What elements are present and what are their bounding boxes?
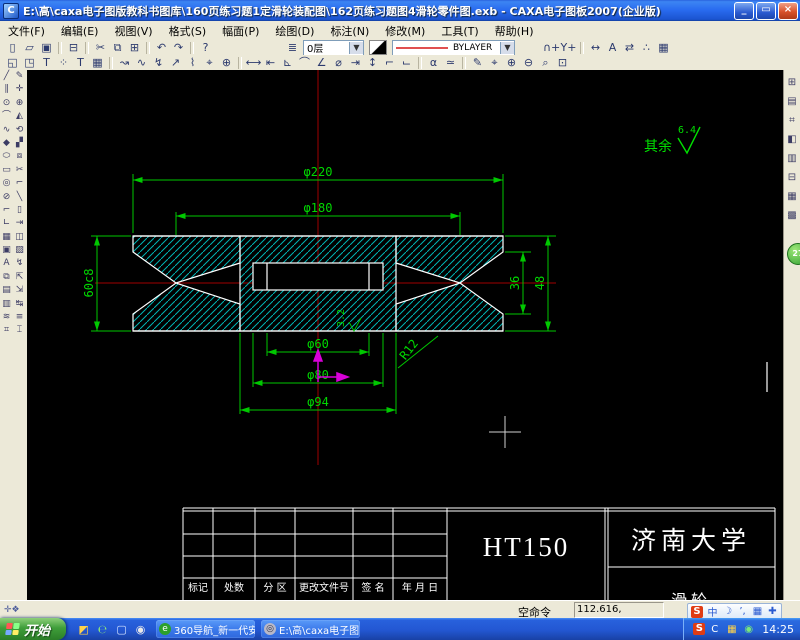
menu-edit[interactable]: 编辑(E) bbox=[53, 21, 107, 41]
snap-toggle-icon[interactable]: ❖ bbox=[12, 605, 20, 615]
layer-icon[interactable]: ≣ bbox=[284, 41, 301, 55]
dim-linear-button[interactable]: ⟷ bbox=[245, 56, 262, 70]
part-lib-button[interactable]: ▩ bbox=[785, 208, 800, 227]
caxa-window: { "window": { "title": "E:\\高\\caxa电子图版教… bbox=[0, 0, 800, 640]
separator bbox=[190, 42, 194, 54]
transform-move-button[interactable]: ↔ bbox=[587, 41, 604, 55]
title-block-labels: 标记 处数 分 区 更改文件号 签 名 年 月 日 bbox=[188, 581, 438, 594]
tool-block[interactable]: ⧉ bbox=[1, 271, 13, 284]
copy-button[interactable]: ⧉ bbox=[109, 41, 126, 55]
dim-offset-button[interactable]: ⇥ bbox=[347, 56, 364, 70]
menu-format[interactable]: 格式(S) bbox=[161, 21, 215, 41]
dim-phi180: φ180 bbox=[304, 201, 333, 215]
tool-hatch[interactable]: ▦ bbox=[1, 231, 13, 244]
redraw-button[interactable]: ✎ bbox=[469, 56, 486, 70]
dim-chain-button[interactable]: ⌙ bbox=[398, 56, 415, 70]
frame-settings-button[interactable]: ◳ bbox=[21, 56, 38, 70]
ime-chinese-icon[interactable]: 中 bbox=[705, 604, 720, 619]
pan-button[interactable]: ⌖ bbox=[486, 56, 503, 70]
separator bbox=[146, 42, 150, 54]
menu-dimension[interactable]: 标注(N) bbox=[322, 21, 377, 41]
separator bbox=[85, 42, 89, 54]
point-style-button[interactable]: ⁘ bbox=[55, 56, 72, 70]
center-button[interactable]: ⊕ bbox=[218, 56, 235, 70]
help-button[interactable]: ? bbox=[197, 41, 214, 55]
separator bbox=[580, 42, 584, 54]
start-button[interactable]: 开始 bbox=[0, 618, 66, 640]
transform-rotate-button[interactable]: ⇄ bbox=[621, 41, 638, 55]
tool-trim[interactable]: ⇲ bbox=[14, 284, 26, 297]
image-lib-button[interactable]: ◧ bbox=[785, 132, 800, 151]
sogou-logo-icon[interactable]: S bbox=[691, 606, 703, 618]
task-button-caxa[interactable]: ◎ E:\高\caxa电子图... bbox=[261, 620, 360, 638]
folder-icon[interactable]: ▢ bbox=[114, 622, 129, 637]
app-icon: C bbox=[3, 3, 19, 19]
windows-logo-icon bbox=[5, 623, 21, 635]
svg-text:处数: 处数 bbox=[224, 581, 244, 594]
library-toolbar: ⊞▤⌗◧▥⊟▦▩ bbox=[783, 70, 800, 600]
cut-button[interactable]: ✂ bbox=[92, 41, 109, 55]
svg-text:签 名: 签 名 bbox=[361, 581, 384, 594]
tool-explode[interactable]: ↯ bbox=[14, 257, 26, 270]
title-lib-button[interactable]: ▥ bbox=[785, 151, 800, 170]
hatch-lib-button[interactable]: ▦ bbox=[785, 189, 800, 208]
frame-lib-button[interactable]: ⊟ bbox=[785, 170, 800, 189]
separator bbox=[238, 57, 242, 69]
tool-rotate[interactable]: ⊕ bbox=[14, 97, 26, 110]
browser-button[interactable]: ▤ bbox=[785, 94, 800, 113]
media-player-icon[interactable]: ◉ bbox=[133, 622, 148, 637]
tool-scale[interactable]: ⟲ bbox=[14, 124, 26, 137]
tool-extend[interactable]: ⇥ bbox=[14, 217, 26, 230]
part-name-text: 滑轮 bbox=[671, 591, 711, 600]
menu-help[interactable]: 帮助(H) bbox=[487, 21, 542, 41]
zoom-all-button[interactable]: ⊡ bbox=[554, 56, 571, 70]
arrow-button[interactable]: ↗ bbox=[167, 56, 184, 70]
linetype-select[interactable]: BYLAYER ▼ bbox=[392, 40, 515, 56]
table-button[interactable]: ▦ bbox=[89, 56, 106, 70]
new-button[interactable]: ▯ bbox=[4, 41, 21, 55]
tool-polyline[interactable]: ⌐ bbox=[1, 204, 13, 217]
menu-view[interactable]: 视图(V) bbox=[106, 21, 160, 41]
menu-modify[interactable]: 修改(M) bbox=[377, 21, 433, 41]
tool-parallel[interactable]: ∥ bbox=[1, 83, 13, 96]
minimize-button[interactable]: _ bbox=[734, 2, 754, 20]
dim-angle-button[interactable]: ⊾ bbox=[279, 56, 296, 70]
dim-phi220: φ220 bbox=[304, 165, 333, 179]
drawing-canvas[interactable]: φ220 φ180 φ60 φ80 φ94 60c8 36 48 R12 3.2… bbox=[27, 70, 783, 600]
save-button[interactable]: ▣ bbox=[38, 41, 55, 55]
crosshair-cursor bbox=[489, 416, 521, 448]
tool-rect[interactable]: ▭ bbox=[1, 164, 13, 177]
dim-48: 48 bbox=[533, 276, 547, 290]
tool-line2[interactable]: ╲ bbox=[14, 191, 26, 204]
organization-text: 济南大学 bbox=[631, 526, 751, 555]
task-button-browser[interactable]: e 360导航_新一代安... bbox=[156, 620, 255, 638]
menu-bar: 文件(F)编辑(E)视图(V)格式(S)幅面(P)绘图(D)标注(N)修改(M)… bbox=[0, 21, 800, 41]
tool-hatch2[interactable]: ▨ bbox=[14, 244, 26, 257]
tool-wave[interactable]: ≋ bbox=[1, 311, 13, 324]
other-roughness-value: 6.4 bbox=[678, 125, 696, 136]
block-button[interactable]: ▦ bbox=[655, 41, 672, 55]
zoom-window-button[interactable]: ⌕ bbox=[537, 56, 554, 70]
print-button[interactable]: ⊟ bbox=[65, 41, 82, 55]
tool-text[interactable]: A bbox=[1, 257, 13, 270]
bore-roughness-text: 3.2 bbox=[336, 309, 347, 327]
tool-ellipse[interactable]: ⬭ bbox=[1, 150, 13, 163]
dim-angle2-button[interactable]: ∠ bbox=[313, 56, 330, 70]
pulley-drawing: φ220 φ180 φ60 φ80 φ94 60c8 36 48 R12 3.2… bbox=[27, 70, 783, 600]
tool-sketch[interactable]: ✎ bbox=[14, 70, 26, 83]
bore-section bbox=[253, 263, 383, 290]
standard-toolbar: ▯▱▣⊟✂⧉⊞↶↷? ≣ 0层 ▼ BYLAYER ▼ ∩+Y+↔A⇄∴▦ bbox=[0, 40, 800, 55]
chevron-down-icon[interactable]: ▼ bbox=[349, 42, 363, 54]
separator bbox=[418, 57, 422, 69]
title-bar: C E:\高\caxa电子图版教科书图库\160页练习题1定滑轮装配图\162页… bbox=[0, 0, 800, 21]
tool-layers[interactable]: ≡ bbox=[14, 311, 26, 324]
tool-mirror[interactable]: ◭ bbox=[14, 110, 26, 123]
sogou-tray-icon[interactable]: S bbox=[693, 623, 705, 635]
tool-stretch[interactable]: ◫ bbox=[14, 231, 26, 244]
tool-break[interactable]: ✂ bbox=[14, 164, 26, 177]
tool-corner[interactable]: ⇱ bbox=[14, 271, 26, 284]
svg-text:年 月 日: 年 月 日 bbox=[402, 581, 438, 594]
zoom-out-button[interactable]: ⊖ bbox=[520, 56, 537, 70]
tool-arc[interactable]: ⌒ bbox=[1, 110, 13, 123]
draw-tool-palette: ╱∥⊙⌒∿◆⬭▭◎⊘⌐∟▦▣A⧉▤▥≋⌗ ✎✛⊕◭⟲▞⧈✂⌐╲▯⇥◫▨↯⇱⇲↹≡… bbox=[0, 70, 28, 600]
symbol-lib-button[interactable]: ⌗ bbox=[785, 113, 800, 132]
coordinates-readout: 112.616, -32.151 bbox=[574, 602, 664, 618]
status-bar: ✛❖ 空命令 112.616, -32.151 S中☽’,▦✚ bbox=[0, 600, 800, 619]
break-line-button[interactable]: ↯ bbox=[150, 56, 167, 70]
text-style-button[interactable]: T bbox=[38, 56, 55, 70]
color-button[interactable] bbox=[369, 40, 387, 55]
dim-leader-button[interactable]: ⌐ bbox=[381, 56, 398, 70]
inspect-button[interactable]: ⌖ bbox=[201, 56, 218, 70]
general-roughness-note: 其余 6.4 bbox=[644, 125, 700, 155]
paste-button[interactable]: ⊞ bbox=[126, 41, 143, 55]
tool-detail[interactable]: ▥ bbox=[1, 298, 13, 311]
dim-phi94: φ94 bbox=[307, 395, 329, 409]
network-tray-icon[interactable]: ▦ bbox=[724, 624, 739, 635]
ime-keyboard-icon[interactable]: ▦ bbox=[750, 606, 765, 617]
ime-punct-icon[interactable]: ’, bbox=[735, 606, 750, 617]
system-tray: SC▦◉ 14:25 bbox=[683, 618, 800, 640]
tool-grid[interactable]: ⌗ bbox=[1, 324, 13, 337]
dim-vertical-button[interactable]: ↕ bbox=[364, 56, 381, 70]
other-label: 其余 bbox=[644, 138, 672, 155]
tool-array[interactable]: ▞ bbox=[14, 137, 26, 150]
frame-zoom-button[interactable]: ◱ bbox=[4, 56, 21, 70]
undo-button[interactable]: ↶ bbox=[153, 41, 170, 55]
dim-arc-button[interactable]: ⌒ bbox=[296, 56, 313, 70]
library-button[interactable]: ⊞ bbox=[785, 75, 800, 94]
menu-sheet[interactable]: 幅面(P) bbox=[214, 21, 267, 41]
taskbar: 开始 ◩℮▢◉ e 360导航_新一代安... ◎ E:\高\caxa电子图..… bbox=[0, 618, 800, 640]
tool-fill[interactable]: ◆ bbox=[1, 137, 13, 150]
dim-diameter-button[interactable]: ⌀ bbox=[330, 56, 347, 70]
ime-tray-icon[interactable]: C bbox=[707, 624, 722, 635]
transform-mirror-button[interactable]: A bbox=[604, 41, 621, 55]
profile-button[interactable]: ⌇ bbox=[184, 56, 201, 70]
redo-button[interactable]: ↷ bbox=[170, 41, 187, 55]
zoom-in-button[interactable]: ⊕ bbox=[503, 56, 520, 70]
menu-tools[interactable]: 工具(T) bbox=[433, 21, 486, 41]
layer-value: 0层 bbox=[307, 40, 323, 55]
leader-button[interactable]: ↝ bbox=[116, 56, 133, 70]
svg-text:更改文件号: 更改文件号 bbox=[299, 581, 349, 594]
tool-table[interactable]: ▤ bbox=[1, 284, 13, 297]
menu-file[interactable]: 文件(F) bbox=[0, 21, 53, 41]
text-button[interactable]: T bbox=[72, 56, 89, 70]
symbol-alpha-button[interactable]: α bbox=[425, 56, 442, 70]
tool-image[interactable]: ▣ bbox=[1, 244, 13, 257]
tool-line[interactable]: ╱ bbox=[1, 70, 13, 83]
close-button[interactable]: × bbox=[778, 2, 798, 20]
dim-baseline-button[interactable]: ⇤ bbox=[262, 56, 279, 70]
ime-moon-icon[interactable]: ☽ bbox=[720, 606, 735, 617]
tool-move[interactable]: ✛ bbox=[14, 83, 26, 96]
separator bbox=[58, 42, 62, 54]
open-button[interactable]: ▱ bbox=[21, 41, 38, 55]
tool-circle[interactable]: ⊙ bbox=[1, 97, 13, 110]
linetype-value: BYLAYER bbox=[453, 43, 492, 53]
linetype-preview bbox=[396, 47, 448, 49]
origin-marker bbox=[314, 350, 348, 382]
tool-block2[interactable]: ⧈ bbox=[14, 150, 26, 163]
separator bbox=[462, 57, 466, 69]
svg-text:标记: 标记 bbox=[188, 582, 208, 594]
tool-rect2[interactable]: ▯ bbox=[14, 204, 26, 217]
transform-array-button[interactable]: ∴ bbox=[638, 41, 655, 55]
tool-eraser[interactable]: ⊘ bbox=[1, 191, 13, 204]
tolerance-button[interactable]: ≃ bbox=[442, 56, 459, 70]
ie-icon[interactable]: ℮ bbox=[95, 622, 110, 637]
dim-height-left: 60c8 bbox=[82, 269, 96, 298]
quick-launch: ◩℮▢◉ bbox=[74, 622, 150, 637]
dimension-toolbar: ◱◳T⁘T▦↝∿↯↗⌇⌖⊕⟷⇤⊾⌒∠⌀⇥↕⌐⌙α≃✎⌖⊕⊖⌕⊡ bbox=[0, 55, 800, 71]
tool-beam[interactable]: ⌶ bbox=[14, 324, 26, 337]
restore-button[interactable]: ▭ bbox=[756, 2, 776, 20]
ortho-toggle-icon[interactable]: ✛ bbox=[4, 605, 12, 615]
curve-button[interactable]: ∿ bbox=[133, 56, 150, 70]
window-title: E:\高\caxa电子图版教科书图库\160页练习题1定滑轮装配图\162页练习… bbox=[23, 3, 734, 19]
sogou-input-icon[interactable]: ◩ bbox=[76, 622, 91, 637]
tool-spline[interactable]: ∿ bbox=[1, 124, 13, 137]
svg-text:分 区: 分 区 bbox=[263, 582, 286, 594]
security-tray-icon[interactable]: ◉ bbox=[741, 624, 756, 635]
browser-icon: e bbox=[159, 623, 171, 635]
tool-point[interactable]: ◎ bbox=[1, 177, 13, 190]
tool-offset[interactable]: ↹ bbox=[14, 298, 26, 311]
clock[interactable]: 14:25 bbox=[762, 623, 794, 636]
chevron-down-icon[interactable]: ▼ bbox=[500, 42, 514, 54]
dim-r12: R12 bbox=[397, 337, 421, 363]
caxa-icon: ◎ bbox=[264, 623, 276, 635]
material-text: HT150 bbox=[483, 532, 570, 562]
tool-fillet[interactable]: ⌐ bbox=[14, 177, 26, 190]
separator bbox=[109, 57, 113, 69]
layer-select[interactable]: 0层 ▼ bbox=[303, 40, 364, 56]
ime-tools-icon[interactable]: ✚ bbox=[765, 606, 780, 617]
dim-36: 36 bbox=[508, 276, 522, 290]
tool-chamfer[interactable]: ∟ bbox=[1, 217, 13, 230]
point-pick-button[interactable]: Y+ bbox=[560, 41, 577, 55]
menu-draw[interactable]: 绘图(D) bbox=[267, 21, 322, 41]
node-pick-button[interactable]: ∩+ bbox=[543, 41, 560, 55]
